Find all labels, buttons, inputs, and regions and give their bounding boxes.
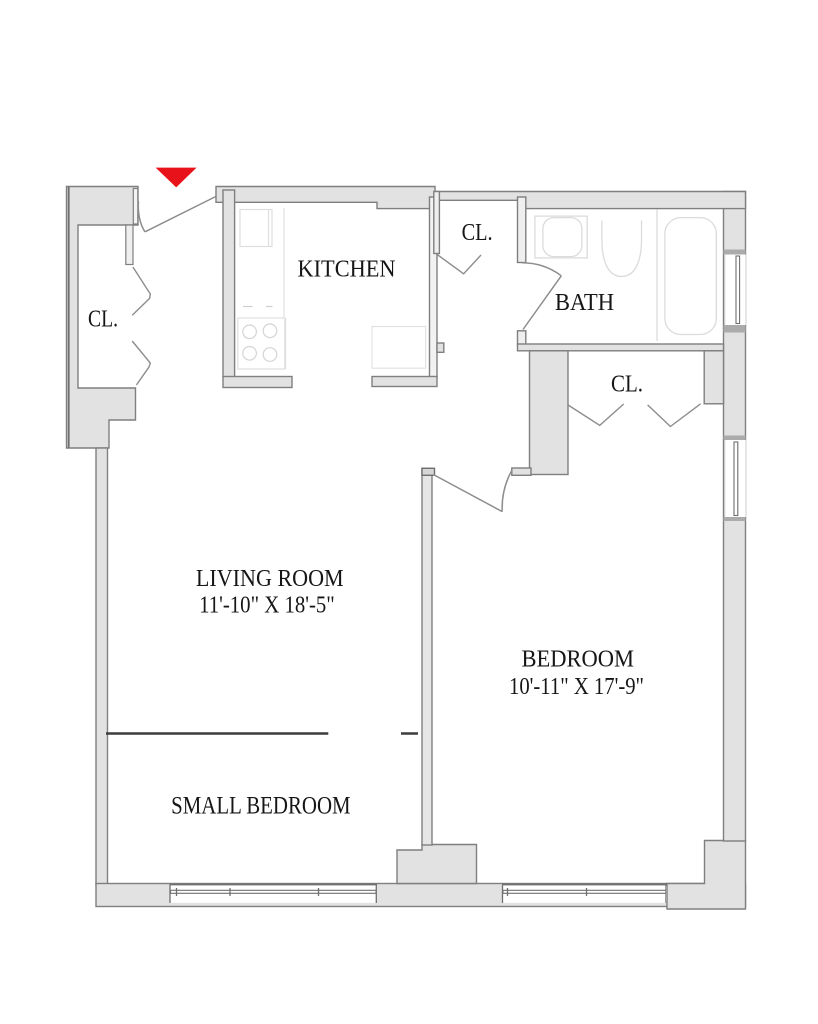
svg-text:LIVING ROOM: LIVING ROOM — [196, 565, 344, 592]
svg-text:11'-10" X 18'-5": 11'-10" X 18'-5" — [199, 593, 335, 619]
svg-text:KITCHEN: KITCHEN — [298, 256, 396, 282]
svg-text:BEDROOM: BEDROOM — [522, 646, 635, 673]
svg-text:BATH: BATH — [555, 290, 614, 316]
svg-text:SMALL BEDROOM: SMALL BEDROOM — [171, 793, 351, 820]
svg-text:CL.: CL. — [88, 307, 118, 333]
svg-text:CL.: CL. — [611, 372, 643, 398]
svg-text:10'-11" X 17'-9": 10'-11" X 17'-9" — [509, 674, 644, 700]
svg-text:CL.: CL. — [462, 220, 493, 246]
